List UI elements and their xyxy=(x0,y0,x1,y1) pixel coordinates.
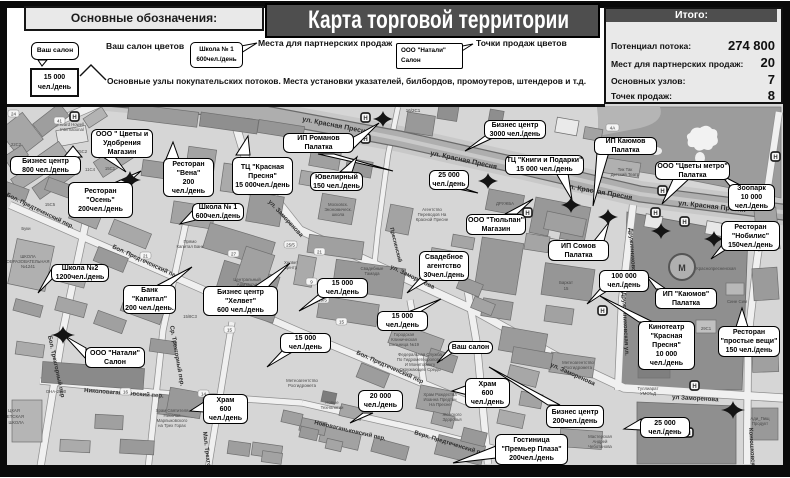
svg-text:Баркат: Баркат xyxy=(559,280,573,285)
svg-text:№1241: №1241 xyxy=(21,264,36,269)
svg-text:4А: 4А xyxy=(610,126,616,131)
svg-text:Н: Н xyxy=(682,220,686,226)
svg-text:15/8С3: 15/8С3 xyxy=(183,314,197,319)
svg-text:Росгидромета: Росгидромета xyxy=(564,365,593,370)
svg-text:на Трех Горах: на Трех Горах xyxy=(158,423,187,428)
svg-text:15: 15 xyxy=(339,320,345,325)
svg-text:ЦКАЯ: ЦКАЯ xyxy=(8,408,20,413)
svg-text:ДРУЖБА: ДРУЖБА xyxy=(496,201,514,206)
svg-text:25/5: 25/5 xyxy=(286,243,295,248)
svg-text:21: 21 xyxy=(317,250,323,255)
svg-text:Н: Н xyxy=(692,384,696,390)
svg-text:Сине Сим: Сине Сим xyxy=(727,299,747,304)
svg-text:Росгидромета: Росгидромета xyxy=(288,383,317,388)
svg-text:27: 27 xyxy=(231,252,237,257)
svg-text:Детский Театр: Детский Театр xyxy=(611,172,640,177)
svg-text:Н: Н xyxy=(72,115,76,121)
svg-text:Здоровья: Здоровья xyxy=(442,417,462,422)
svg-text:Н: Н xyxy=(653,211,657,217)
svg-text:41: 41 xyxy=(57,119,63,124)
svg-text:15С5: 15С5 xyxy=(45,202,56,207)
svg-text:Буки: Буки xyxy=(21,226,31,231)
svg-text:Н: Н xyxy=(773,155,777,161)
svg-text:Краснопресненская: Краснопресненская xyxy=(696,266,736,271)
svg-text:школа: школа xyxy=(332,212,345,217)
svg-text:ОНА-2000: ОНА-2000 xyxy=(46,389,67,394)
svg-text:На Пресне: На Пресне xyxy=(429,402,451,407)
svg-text:Чеботанова: Чеботанова xyxy=(588,444,612,449)
svg-text:15С1: 15С1 xyxy=(105,166,116,171)
svg-text:24: 24 xyxy=(11,112,17,117)
svg-text:Капитал Банк: Капитал Банк xyxy=(176,244,203,249)
svg-text:УМОЪД: УМОЪД xyxy=(640,391,656,396)
svg-text:21: 21 xyxy=(143,254,149,259)
svg-text:15: 15 xyxy=(564,286,569,291)
svg-text:Н: Н xyxy=(363,116,367,122)
svg-text:15: 15 xyxy=(227,328,233,333)
svg-text:16: 16 xyxy=(123,390,129,395)
svg-text:Тамада: Тамада xyxy=(364,271,380,276)
svg-text:Я ШКОЛА: Я ШКОЛА xyxy=(7,420,24,425)
svg-text:16/2С1: 16/2С1 xyxy=(406,108,421,113)
svg-text:International: International xyxy=(60,127,84,132)
svg-text:Окружающей Среды: Окружающей Среды xyxy=(399,367,440,372)
svg-text:22С2: 22С2 xyxy=(11,142,22,147)
svg-text:Продукт: Продукт xyxy=(752,421,768,426)
svg-text:Технологии: Технологии xyxy=(321,405,344,410)
svg-text:11С4: 11С4 xyxy=(85,167,96,172)
svg-text:Красной Пресне: Красной Пресне xyxy=(416,217,449,222)
svg-text:Н: Н xyxy=(525,211,529,217)
svg-text:Н: Н xyxy=(660,189,664,195)
svg-text:ДЕТСКАЯ: ДЕТСКАЯ xyxy=(7,414,24,419)
svg-text:Больница №19: Больница №19 xyxy=(389,342,420,347)
svg-text:Н: Н xyxy=(600,309,604,315)
svg-text:29С1: 29С1 xyxy=(701,326,712,331)
svg-text:М: М xyxy=(678,263,686,273)
